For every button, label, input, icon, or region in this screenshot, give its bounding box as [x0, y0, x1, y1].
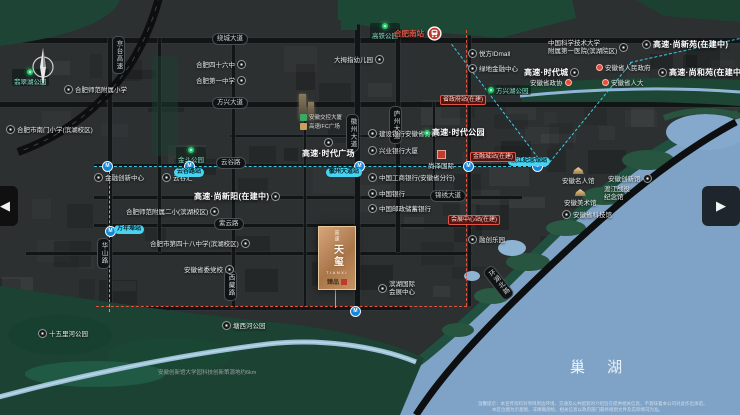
road-name-pill: 锦绣大道: [430, 190, 466, 202]
label-text: 塘西河公园: [233, 320, 266, 330]
circle-icon: [378, 284, 387, 293]
circle-icon: [368, 204, 377, 213]
label-text: 中国科学技术大学附属第一医院(滨湖院区): [548, 40, 617, 55]
park-label: 方兴湖公园: [486, 85, 531, 95]
label-text: 合肥四十六中: [196, 59, 235, 69]
poi-label: 悦方IDmall: [468, 48, 510, 58]
circle-icon: [468, 49, 477, 58]
location-map: 合肥南站 高速 天玺 TIANXI 臻品 巢 湖: [0, 0, 740, 415]
label-text: 安徽交控大厦: [309, 113, 342, 121]
circle-icon: [375, 55, 384, 64]
poi-label: 渡江战役纪念馆: [604, 186, 630, 201]
circle-icon: [643, 174, 652, 183]
station-label: 合肥南站: [394, 28, 424, 39]
label-text: 中国银行: [379, 188, 405, 198]
logo-name: 天玺: [330, 244, 345, 268]
poi-label: 安徽省科技馆: [562, 209, 612, 219]
poi-label: 融创乐园: [468, 234, 505, 244]
label-text: 安徽美术馆: [564, 197, 597, 207]
distance-note: 安徽创新馆大学园科技创新策源地约6km: [158, 368, 256, 376]
logo-brand: 高速: [334, 230, 341, 242]
label-text: 滨湖国际会展中心: [389, 281, 415, 296]
metro-line-cyan: [94, 166, 546, 167]
label-text: 合肥师范附属二小(滨湖校区): [126, 206, 208, 216]
circle-icon: [468, 64, 477, 73]
circle-icon: [658, 68, 667, 77]
planned-station-pill: 会展中心站(在建): [448, 215, 500, 225]
metro-station-icon: M: [350, 306, 361, 317]
hefei-south-station: 合肥南站: [394, 26, 442, 41]
label-text: 合肥师范附属小学: [75, 84, 127, 94]
circle-icon: [468, 235, 477, 244]
label-text: 高速·尚新苑(在建中): [653, 39, 728, 50]
poi-label: 十五里河公园: [38, 328, 88, 338]
compass-icon: [30, 46, 56, 88]
partner-logo: 高速IFC广场: [300, 122, 340, 130]
red-dot-icon: [602, 79, 609, 86]
label-text: 尚泽国际: [428, 160, 454, 170]
circle-icon: [162, 173, 171, 182]
label-text: 绿地金融中心: [479, 63, 518, 73]
poi-label: 合肥市南门小学(滨湖校区): [6, 124, 93, 134]
poi-label: 兴业银行大厦: [368, 145, 418, 155]
label-text: 金融创新中心: [105, 172, 144, 182]
poi-label: 合肥师范附属小学: [64, 84, 127, 94]
poi-label: 合肥四十六中: [196, 59, 246, 69]
metro-station-pill: 万年埠站: [114, 225, 144, 234]
red-dot-icon: [565, 79, 572, 86]
green-dot-icon: [188, 147, 194, 153]
road-name-pill: 西藏路: [224, 270, 237, 301]
partner-logo: 安徽交控大厦: [300, 113, 342, 121]
metro-station-pill: 云谷路站: [174, 168, 204, 177]
circle-icon: [271, 192, 280, 201]
planned-station-pill: 金融城站(在建): [470, 152, 516, 162]
partner-logo-icon: [300, 123, 307, 130]
green-dot-icon: [382, 23, 388, 29]
metro-station-icon: M: [102, 161, 113, 172]
logo-seal-text: 臻品: [327, 277, 339, 286]
label-text: 中国邮政储蓄银行: [379, 203, 431, 213]
circle-icon: [64, 85, 73, 94]
road-name-pill: 华山路: [97, 238, 110, 269]
circle-icon: [222, 321, 231, 330]
circle-icon: [562, 210, 571, 219]
circle-icon: [237, 60, 246, 69]
road-name-pill: 庐州大道: [389, 106, 402, 144]
circle-icon: [324, 138, 333, 147]
label-text: 高速·时代城: [524, 67, 568, 78]
green-dot-icon: [424, 130, 430, 136]
poi-label: 安徽省政协: [530, 77, 572, 87]
logo-seal-row: 臻品: [327, 277, 347, 286]
label-text: 高速IFC广场: [309, 122, 340, 130]
label-text: 安徽省政协: [530, 77, 563, 87]
label-text: 合肥市第四十八中学(滨湖校区): [150, 238, 239, 248]
road-name-pill: 绕城大道: [212, 33, 248, 45]
poi-label: 安徽美术馆: [564, 189, 597, 207]
circle-icon: [225, 265, 234, 274]
poi-label: 中国工商银行(安徽省分行): [368, 172, 455, 182]
red-square-icon: [437, 150, 446, 159]
circle-icon: [241, 239, 250, 248]
red-dot-icon: [596, 64, 603, 71]
gold-icon: [573, 167, 584, 174]
label-text: 高速·时代公园: [432, 127, 485, 138]
label-text: 中国工商银行(安徽省分行): [379, 172, 455, 182]
poi-label: 安徽省委党校: [184, 264, 234, 274]
poi-label: 大拇指幼儿园: [334, 54, 384, 64]
poi-label: 安徽省人大: [602, 77, 644, 87]
project-label: 高速·尚新阳(在建中): [194, 191, 280, 202]
label-text: 安徽省委党校: [184, 264, 223, 274]
label-text: 大拇指幼儿园: [334, 54, 373, 64]
poi-label: 金融创新中心: [94, 172, 144, 182]
carousel-next-button[interactable]: ▶: [702, 186, 740, 226]
circle-icon: [368, 146, 377, 155]
label-text: 十五里河公园: [49, 328, 88, 338]
seal-icon: [341, 279, 347, 285]
circle-icon: [368, 129, 377, 138]
metro-station-pill: 徽州大道站: [326, 168, 362, 177]
map-canvas: 合肥南站 高速 天玺 TIANXI 臻品 巢 湖: [0, 0, 740, 415]
label-text: 方兴湖公园: [496, 85, 529, 95]
label-text: 兴业银行大厦: [379, 145, 418, 155]
road-name-pill: 方兴大道: [212, 97, 248, 109]
poi-label: 安徽省人民政府: [596, 62, 651, 72]
poi-label: 中国邮政储蓄银行: [368, 203, 431, 213]
poi-label: 滨湖国际会展中心: [378, 281, 415, 296]
circle-icon: [94, 173, 103, 182]
label-text: 渡江战役纪念馆: [604, 186, 630, 201]
circle-icon: [210, 207, 219, 216]
label-text: 合肥市南门小学(滨湖校区): [17, 124, 93, 134]
circle-icon: [6, 125, 15, 134]
circle-icon: [619, 43, 628, 52]
label-text: 合肥第一中学: [196, 75, 235, 85]
road-name-pill: 京台高速: [112, 36, 125, 74]
label-text: 高速·尚新阳(在建中): [194, 191, 269, 202]
label-text: 高速·尚和苑(在建中): [669, 67, 740, 78]
metro-station-icon: M: [463, 161, 474, 172]
poi-label: 合肥师范附属二小(滨湖校区): [126, 206, 219, 216]
train-station-icon: [427, 26, 442, 41]
road-name-pill: 紫云路: [214, 218, 244, 230]
poi-label: 合肥第一中学: [196, 75, 246, 85]
circle-icon: [38, 329, 47, 338]
carousel-prev-button[interactable]: ◀: [0, 186, 18, 226]
label-text: 安徽省人民政府: [605, 62, 651, 72]
poi-label: 安徽创新馆: [608, 173, 652, 183]
circle-icon: [368, 189, 377, 198]
label-text: 高速·时代广场: [302, 148, 355, 159]
poi-label: 合肥市第四十八中学(滨湖校区): [150, 238, 250, 248]
label-text: 安徽省科技馆: [573, 209, 612, 219]
metro-line-cyan: [109, 166, 110, 312]
project-label: 高速·时代广场: [302, 138, 355, 159]
poi-label: 尚泽国际: [428, 150, 454, 170]
green-dot-icon: [488, 87, 494, 93]
project-label: 高速·时代城: [524, 67, 579, 78]
metro-line-planned: [96, 306, 467, 307]
circle-icon: [237, 76, 246, 85]
disclaimer-line-2: 本区位图为示意图，非精确测绘，相关信息以政府部门最终规划文件及实际情况为准。: [492, 407, 663, 413]
project-label: 高速·时代公园: [424, 127, 485, 138]
road-name-pill: 云谷路: [216, 157, 246, 169]
project-label: 高速·尚新苑(在建中): [642, 39, 728, 50]
logo-latin: TIANXI: [326, 270, 348, 275]
gold-icon: [575, 189, 586, 196]
partner-logo-icon: [300, 114, 307, 121]
circle-icon: [570, 68, 579, 77]
label-text: 融创乐园: [479, 234, 505, 244]
poi-label: 塘西河公园: [222, 320, 266, 330]
circle-icon: [642, 40, 651, 49]
poi-label: 绿地金融中心: [468, 63, 518, 73]
label-text: 安徽名人馆: [562, 175, 595, 185]
project-logo: 高速 天玺 TIANXI 臻品: [318, 226, 356, 290]
circle-icon: [368, 173, 377, 182]
label-text: 安徽省人大: [611, 77, 644, 87]
planned-station-pill: 省政府站(在建): [440, 95, 486, 105]
poi-label: 中国科学技术大学附属第一医院(滨湖院区): [548, 40, 628, 55]
label-text: 安徽创新馆: [608, 173, 641, 183]
project-label: 高速·尚和苑(在建中): [658, 67, 740, 78]
poi-label: 中国银行: [368, 188, 405, 198]
poi-label: 安徽名人馆: [562, 167, 595, 185]
label-text: 悦方IDmall: [479, 48, 510, 58]
lake-label: 巢 湖: [570, 356, 631, 377]
